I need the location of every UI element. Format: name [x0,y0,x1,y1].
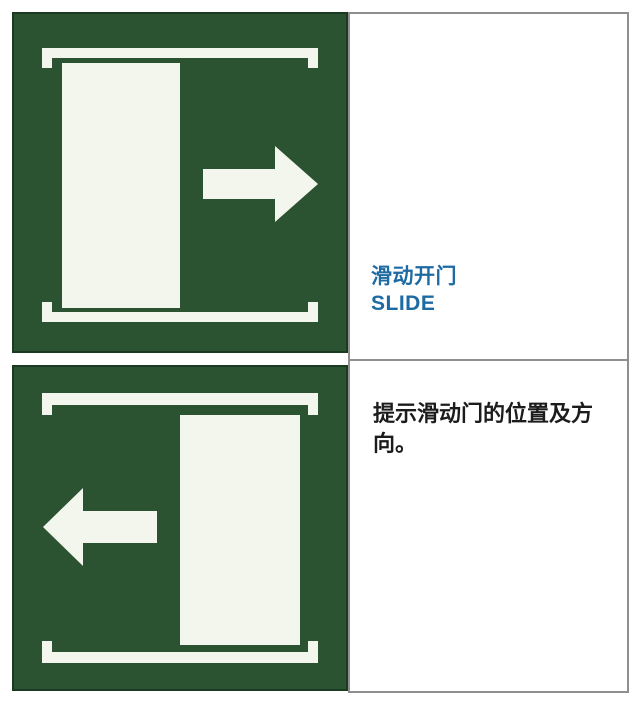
sign-title: 滑动开门 SLIDE [371,263,457,317]
sign-description: 提示滑动门的位置及方 向。 [373,399,615,459]
sign-description-cell: 提示滑动门的位置及方 向。 [348,359,629,693]
sign-description-line-2: 向。 [373,431,417,456]
sign-title-english: SLIDE [371,290,457,317]
slide-left-sign-cell [12,365,348,691]
slide-right-sign-cell [12,12,348,353]
slide-right-sign-image [12,12,348,353]
safety-sign-reference-table: 滑动开门 SLIDE 提示滑动门的位置及方 向。 [0,0,640,711]
sign-description-line-1: 提示滑动门的位置及方 [373,401,593,426]
slide-left-sign-image [12,365,348,691]
sign-title-chinese: 滑动开门 [371,263,457,290]
door-panel [62,63,180,308]
sign-title-cell: 滑动开门 SLIDE [348,12,629,361]
door-panel [180,415,300,645]
